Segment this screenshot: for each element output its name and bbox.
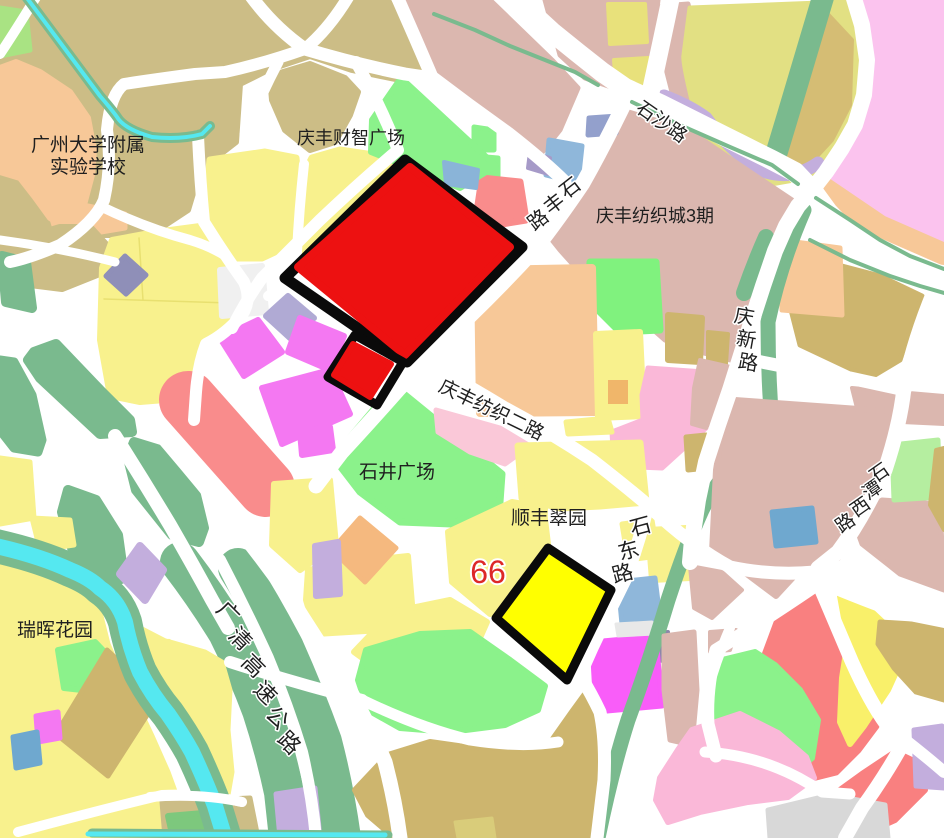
svg-text:庆丰财智广场: 庆丰财智广场	[297, 128, 405, 148]
svg-text:66: 66	[470, 554, 506, 590]
svg-text:庆: 庆	[732, 304, 756, 330]
svg-text:石井广场: 石井广场	[359, 461, 435, 483]
svg-text:广州大学附属: 广州大学附属	[31, 134, 145, 156]
svg-text:瑞晖花园: 瑞晖花园	[17, 619, 93, 641]
svg-text:路: 路	[736, 350, 760, 376]
svg-text:实验学校: 实验学校	[50, 156, 126, 178]
svg-text:庆丰纺织城3期: 庆丰纺织城3期	[596, 206, 714, 226]
svg-text:新: 新	[734, 327, 758, 353]
svg-text:顺丰翠园: 顺丰翠园	[511, 507, 587, 529]
